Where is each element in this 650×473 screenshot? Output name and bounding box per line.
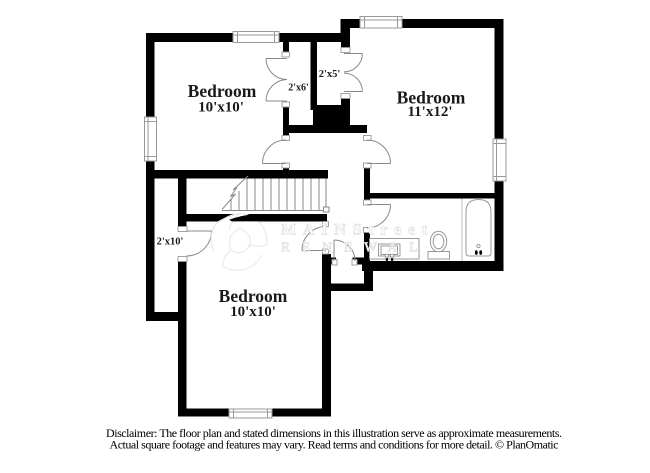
svg-text:RENEWAL: RENEWAL [281,240,430,255]
svg-text:10'x10': 10'x10' [230,304,276,320]
svg-text:2'x5': 2'x5' [319,69,341,80]
svg-text:11'x12': 11'x12' [407,104,452,120]
svg-text:2'x10': 2'x10' [157,237,184,248]
svg-text:10'x10': 10'x10' [198,100,244,116]
svg-text:Actual square footage and feat: Actual square footage and features may v… [110,438,559,452]
svg-text:Bedroom: Bedroom [188,81,257,101]
svg-text:2'x6': 2'x6' [288,83,309,94]
svg-text:Bedroom: Bedroom [219,286,288,306]
svg-text:MAINStreet: MAINStreet [281,222,434,239]
